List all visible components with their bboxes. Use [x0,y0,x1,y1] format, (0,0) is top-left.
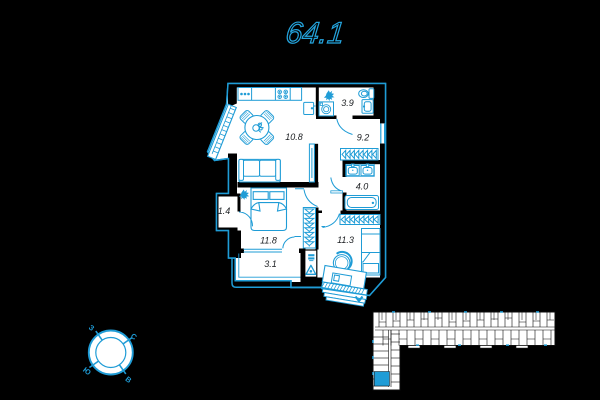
svg-text:3.1: 3.1 [264,259,277,269]
svg-text:64.1: 64.1 [284,17,346,50]
svg-text:11.3: 11.3 [337,235,354,245]
svg-text:1.4: 1.4 [218,206,231,216]
svg-text:3.9: 3.9 [341,98,354,108]
svg-text:9.2: 9.2 [357,132,370,142]
svg-text:10.8: 10.8 [285,132,303,142]
svg-text:4.0: 4.0 [356,181,369,191]
svg-text:11.8: 11.8 [260,236,277,246]
